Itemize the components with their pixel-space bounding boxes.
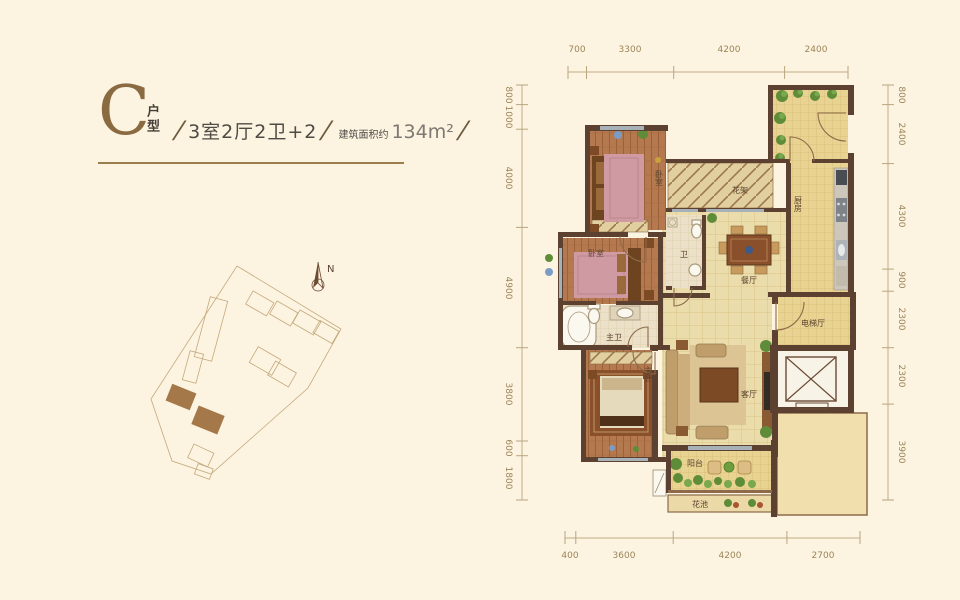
title-block: C 户型 / 3室2厅2卫+2 / 建筑面积约 134m² /	[98, 86, 418, 170]
dim-top-3: 2400	[805, 45, 828, 55]
label-kitchen: 厨房	[794, 196, 803, 213]
floorplan-page: C 户型 / 3室2厅2卫+2 / 建筑面积约 134m² /	[0, 0, 960, 600]
label-master-bedroom: 主卧	[644, 365, 653, 383]
dim-left-6: 1800	[503, 467, 513, 490]
bed-top	[590, 146, 644, 233]
wardrobe	[590, 352, 652, 364]
site-plan: N	[148, 248, 358, 488]
slash-divider: /	[173, 116, 185, 144]
dim-bottom-1: 3600	[613, 551, 636, 561]
dim-left-5: 600	[503, 439, 513, 456]
label-master-bath: 主卫	[606, 332, 622, 342]
dim-right-3: 900	[896, 271, 906, 288]
dim-bottom-0: 400	[561, 551, 578, 561]
dim-right-6: 3900	[896, 441, 906, 464]
label-elevator-hall: 电梯厅	[801, 318, 825, 328]
bed-master	[588, 370, 652, 436]
decor-blue	[545, 268, 553, 276]
decor-blue	[609, 445, 615, 451]
plant-icon	[760, 426, 772, 438]
dim-bottom-3: 2700	[812, 551, 835, 561]
slash-divider: /	[457, 116, 469, 144]
compass: N	[312, 262, 334, 291]
compass-needle-dark	[313, 262, 318, 288]
compass-north-label: N	[327, 264, 334, 275]
title-underline	[98, 162, 404, 164]
dim-left-4: 3800	[503, 383, 513, 406]
dim-left-3: 4900	[503, 277, 513, 300]
dim-left-1: 1000	[503, 106, 513, 129]
compass-needle-light	[318, 262, 323, 288]
kitchen-counter	[834, 168, 848, 290]
plant-icon	[633, 446, 639, 452]
unit-type-label: 户型	[145, 104, 161, 134]
plant-icon	[707, 213, 717, 223]
dim-left-0: 800	[503, 86, 513, 103]
dim-right-2: 4300	[896, 205, 906, 228]
dim-right-1: 2400	[896, 123, 906, 146]
slash-divider: /	[320, 116, 332, 144]
dim-bottom-2: 4200	[719, 551, 742, 561]
area-label: 建筑面积约	[338, 126, 388, 141]
label-bedroom-top: 卧室	[655, 170, 664, 186]
area-value: 134m²	[391, 121, 453, 143]
dim-right-0: 800	[896, 86, 906, 103]
terrace	[777, 413, 867, 515]
dim-right-5: 2300	[896, 365, 906, 388]
label-pergola: 花架	[732, 185, 748, 195]
label-living: 客厅	[741, 389, 757, 399]
label-dining: 餐厅	[741, 276, 757, 285]
plant-icon	[545, 254, 553, 262]
flower-bed	[668, 495, 772, 512]
site-boundary	[151, 266, 341, 479]
dim-top-1: 3300	[619, 45, 642, 55]
dim-right-4: 2300	[896, 308, 906, 331]
elevator-shaft	[770, 345, 854, 413]
label-flower-bed: 花池	[692, 499, 708, 509]
dim-left-2: 4000	[503, 167, 513, 190]
unit-spec: 3室2厅2卫+2	[188, 117, 317, 144]
label-bedroom-mid: 卧室	[588, 248, 604, 258]
room-pergola	[668, 163, 773, 208]
decor-blue	[614, 131, 622, 139]
dim-top-0: 700	[568, 45, 585, 55]
label-bath: 卫	[680, 250, 689, 258]
floor-plan: 卧室 卧室 主卧 主卫 卫 厨房 餐厅 客厅 花架 电梯厅 阳台 花池	[495, 30, 915, 565]
unit-spec-row: / 3室2厅2卫+2 / 建筑面积约 134m² /	[170, 116, 472, 144]
highlighted-buildings	[166, 384, 225, 435]
dim-top-2: 4200	[718, 45, 741, 55]
decor-gold	[655, 157, 661, 163]
label-balcony: 阳台	[687, 458, 703, 468]
